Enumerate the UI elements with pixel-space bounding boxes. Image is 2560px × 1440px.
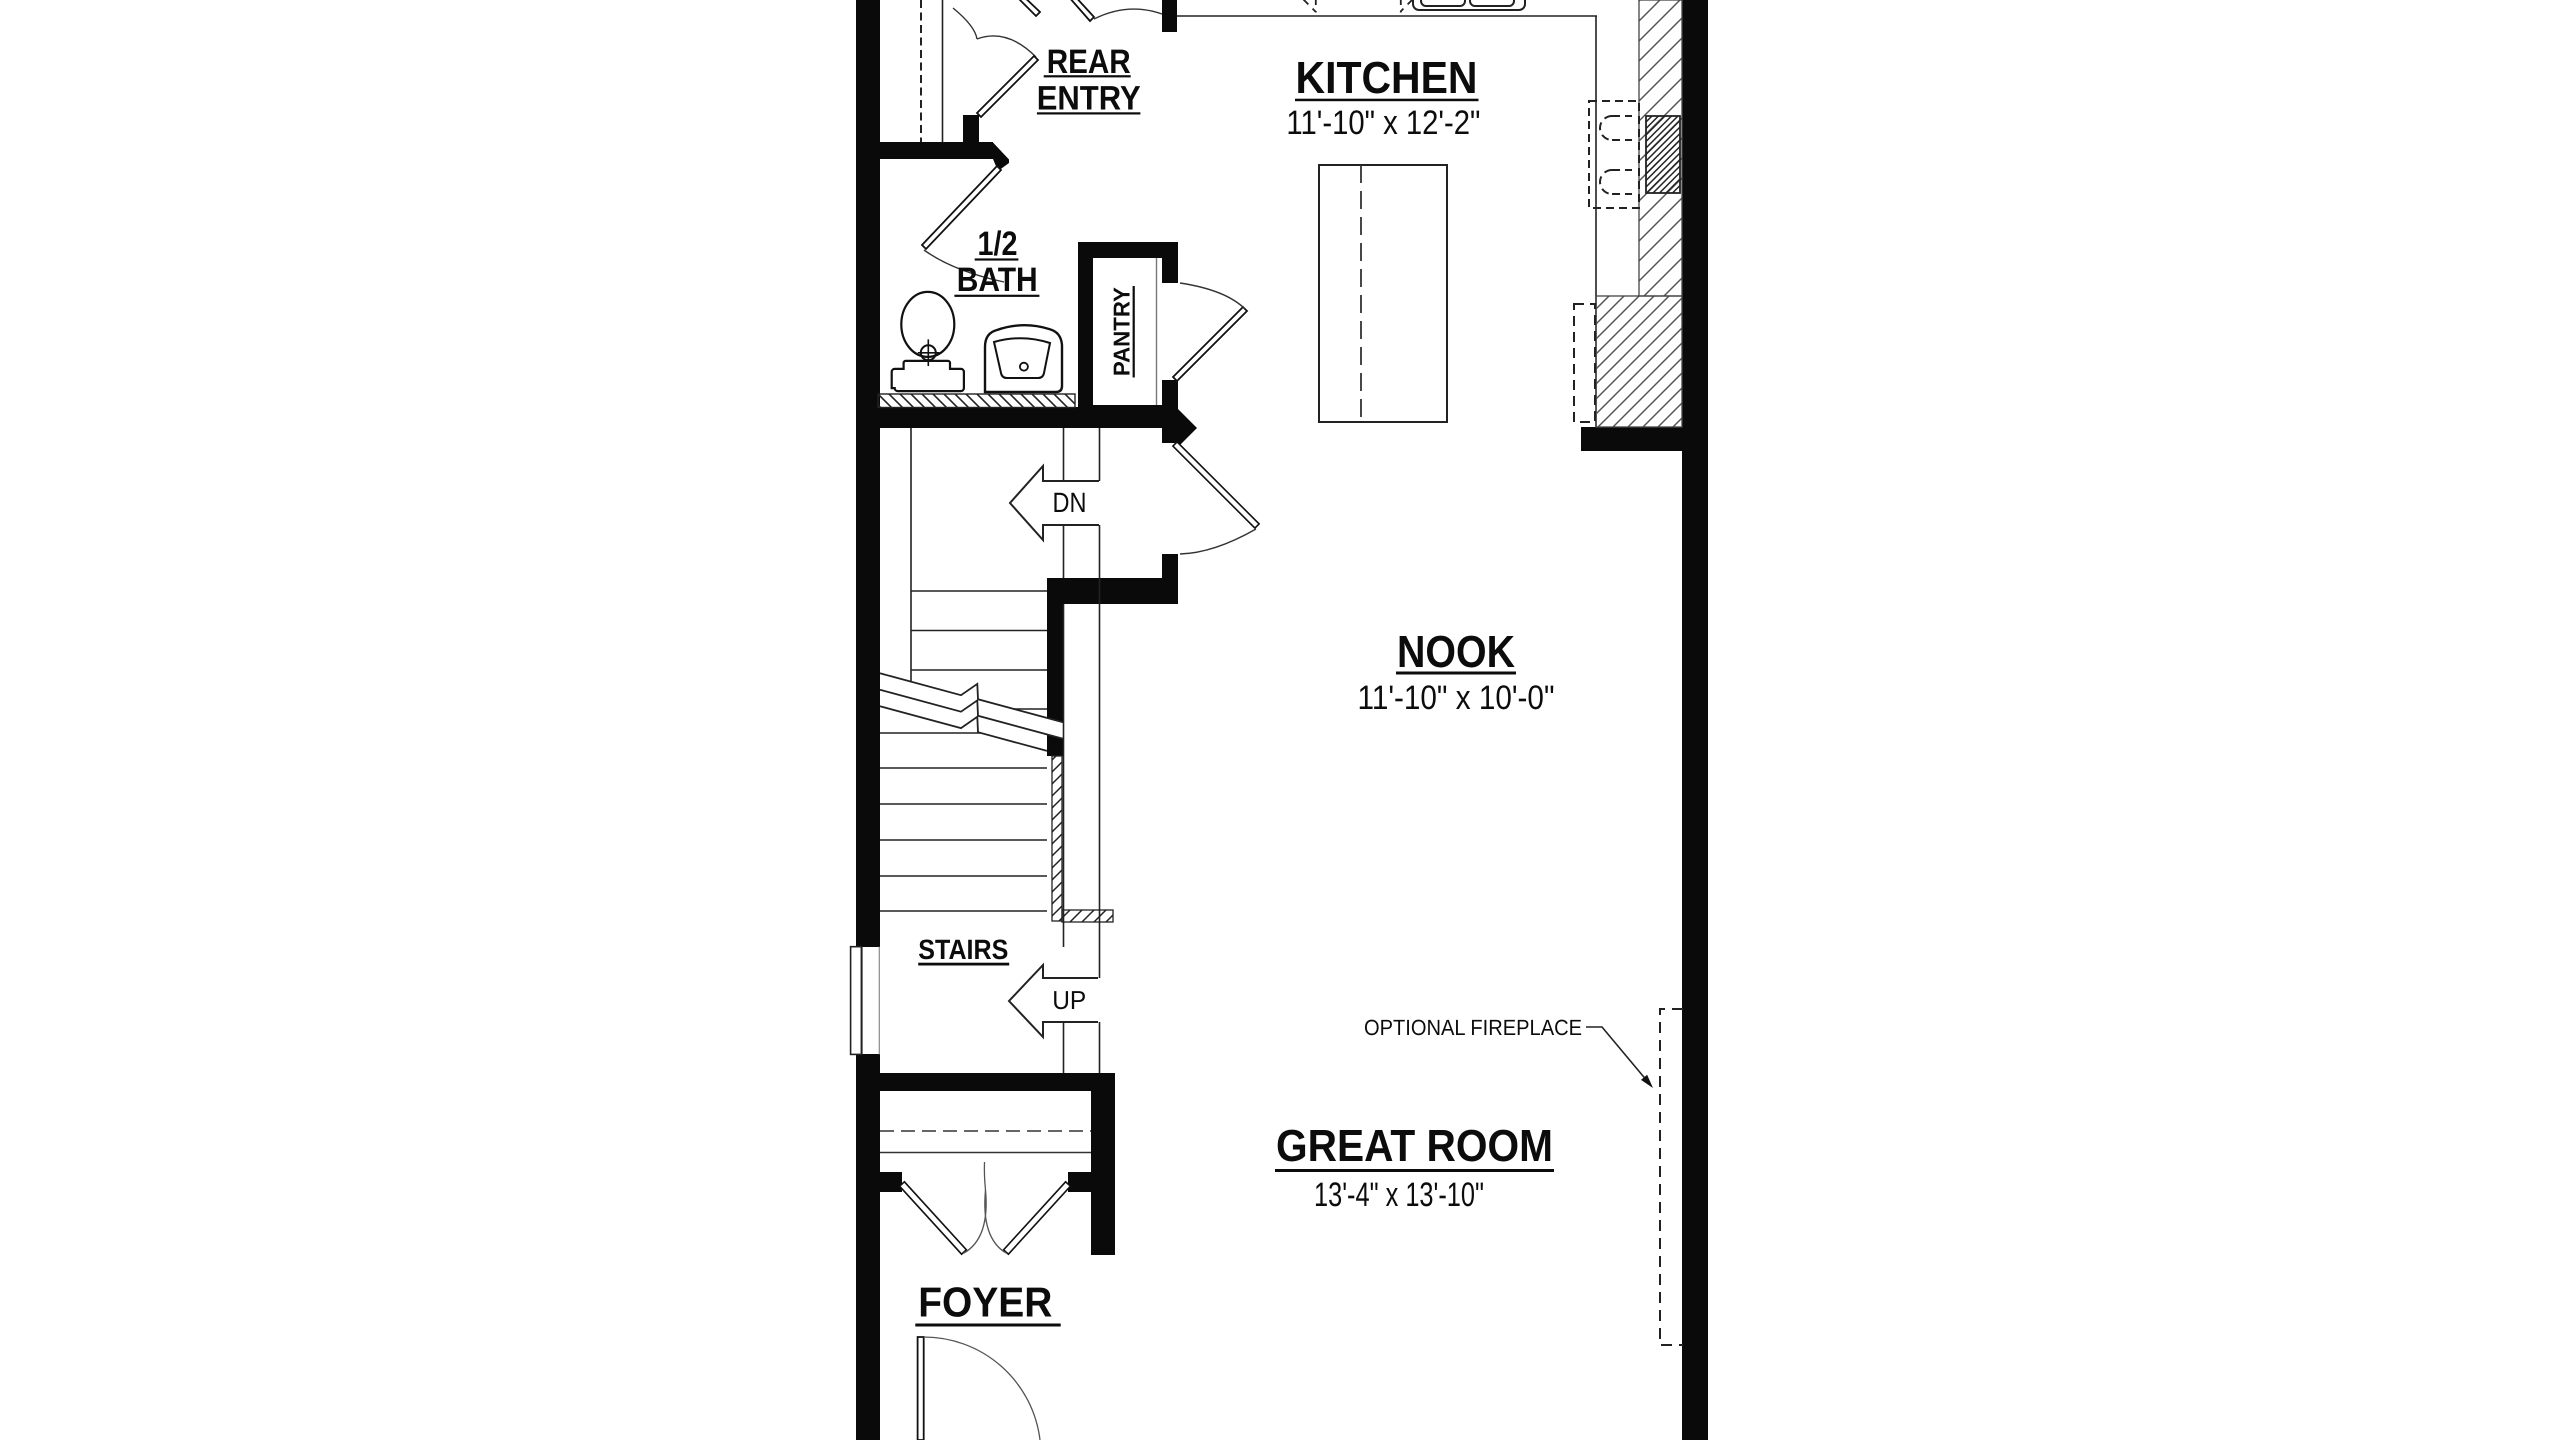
svg-text:FOYER: FOYER [918, 1279, 1052, 1326]
svg-text:DN: DN [1053, 487, 1087, 518]
svg-text:BATH: BATH [957, 261, 1038, 299]
svg-text:PANTRY: PANTRY [1109, 287, 1135, 376]
svg-text:GREAT ROOM: GREAT ROOM [1276, 1120, 1553, 1171]
svg-text:1/2: 1/2 [978, 225, 1018, 263]
svg-text:REAR: REAR [1047, 43, 1131, 81]
svg-text:KITCHEN: KITCHEN [1296, 52, 1478, 103]
svg-text:11'-10" x 10'-0": 11'-10" x 10'-0" [1358, 679, 1555, 717]
svg-text:NOOK: NOOK [1397, 626, 1515, 677]
svg-text:OPTIONAL FIREPLACE: OPTIONAL FIREPLACE [1364, 1015, 1582, 1040]
svg-text:11'-10" x 12'-2": 11'-10" x 12'-2" [1286, 104, 1480, 142]
svg-text:ENTRY: ENTRY [1037, 79, 1141, 117]
svg-text:13'-4" x 13'-10": 13'-4" x 13'-10" [1314, 1176, 1484, 1214]
svg-text:UP: UP [1052, 985, 1086, 1015]
svg-text:STAIRS: STAIRS [918, 934, 1008, 965]
